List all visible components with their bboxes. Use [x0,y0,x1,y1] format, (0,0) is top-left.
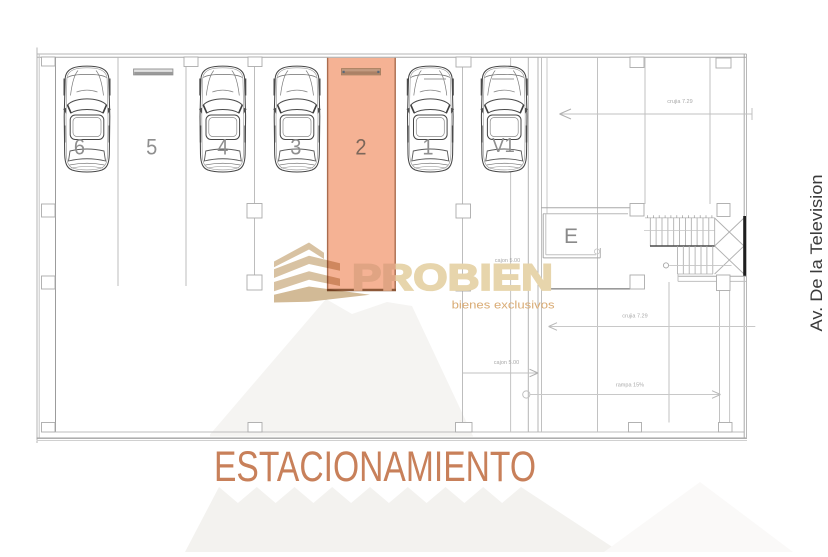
svg-text:1: 1 [422,135,433,159]
svg-text:ESTACIONAMIENTO: ESTACIONAMIENTO [214,444,536,491]
svg-text:rampa 15%: rampa 15% [616,383,644,389]
svg-text:cajon 5.00: cajon 5.00 [494,360,519,366]
svg-text:Av. De la Television: Av. De la Television [808,175,826,332]
svg-text:4: 4 [217,135,228,159]
svg-text:2: 2 [355,135,366,159]
svg-text:5: 5 [146,135,157,159]
svg-text:V1: V1 [492,134,515,157]
svg-text:3: 3 [290,135,301,159]
svg-text:crujia 7.29: crujia 7.29 [667,99,692,105]
svg-text:crujia 7.29: crujia 7.29 [622,314,647,320]
svg-text:bienes exclusivos: bienes exclusivos [452,300,556,312]
svg-text:6: 6 [74,135,85,159]
svg-text:E: E [564,225,578,248]
